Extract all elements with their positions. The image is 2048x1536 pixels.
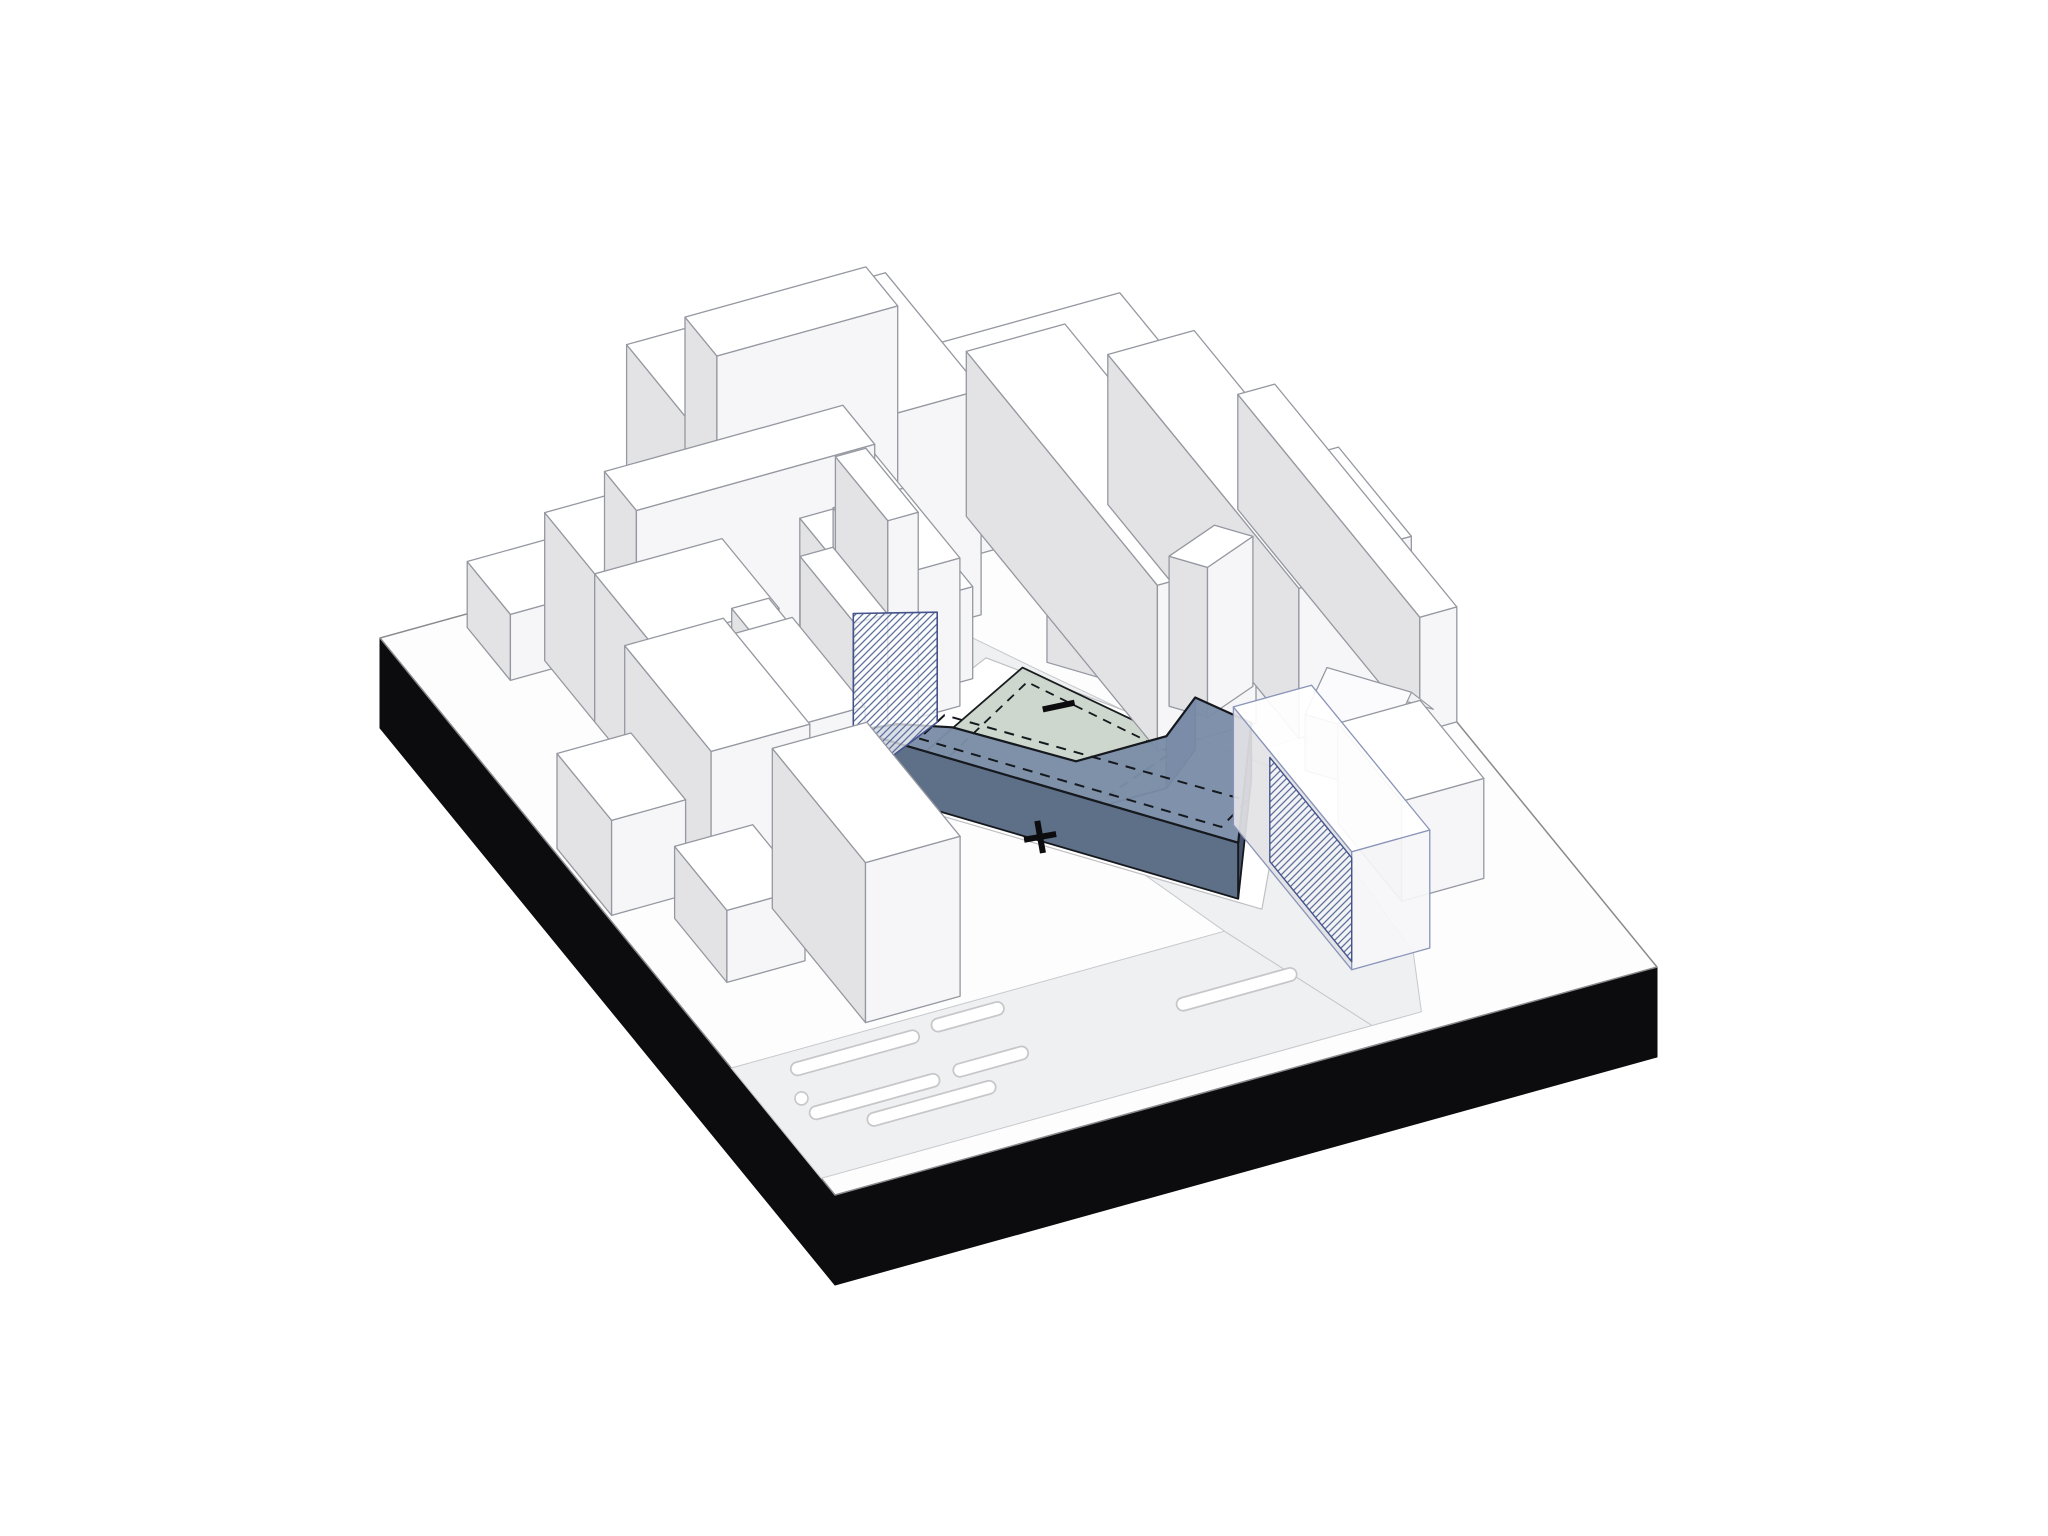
generated-scene (380, 267, 1657, 1285)
site-model-scene: + − (0, 0, 2048, 1536)
street-dot (795, 1092, 808, 1105)
slim-tower (1169, 525, 1253, 717)
axonometric-massing-diagram: + − (0, 0, 2048, 1536)
